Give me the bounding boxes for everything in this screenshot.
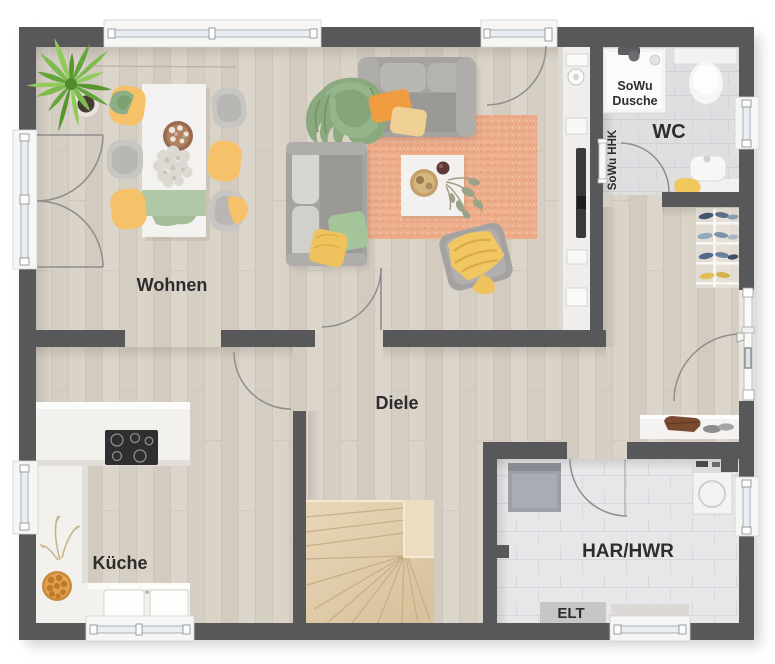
svg-text:SoWu: SoWu (617, 79, 652, 93)
svg-text:ELT: ELT (557, 605, 584, 622)
svg-text:SoWu HHK: SoWu HHK (607, 129, 619, 190)
svg-text:Diele: Diele (375, 393, 418, 413)
svg-text:HAR/HWR: HAR/HWR (582, 541, 674, 562)
svg-text:Wohnen: Wohnen (137, 275, 208, 295)
svg-text:Dusche: Dusche (612, 94, 657, 108)
svg-text:WC: WC (652, 121, 685, 143)
svg-text:Küche: Küche (92, 553, 147, 573)
